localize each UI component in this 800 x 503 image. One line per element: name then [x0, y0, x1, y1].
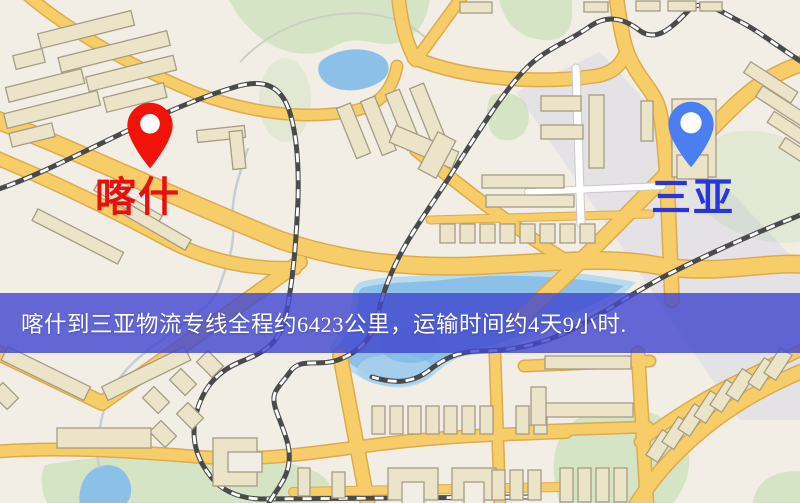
route-info-text: 喀什到三亚物流专线全程约6423公里，运输时间约4天9小时.: [21, 307, 627, 339]
destination-pin-icon[interactable]: [666, 100, 716, 169]
origin-pin-icon[interactable]: [125, 101, 175, 170]
origin-city-label: 喀什: [95, 177, 181, 218]
map-screenshot: 喀什到三亚物流专线全程约6423公里，运输时间约4天9小时. 喀什 三亚: [0, 0, 800, 503]
destination-city-label: 三亚: [651, 178, 735, 218]
route-info-banner: 喀什到三亚物流专线全程约6423公里，运输时间约4天9小时.: [0, 293, 800, 353]
map-canvas: [0, 0, 800, 503]
